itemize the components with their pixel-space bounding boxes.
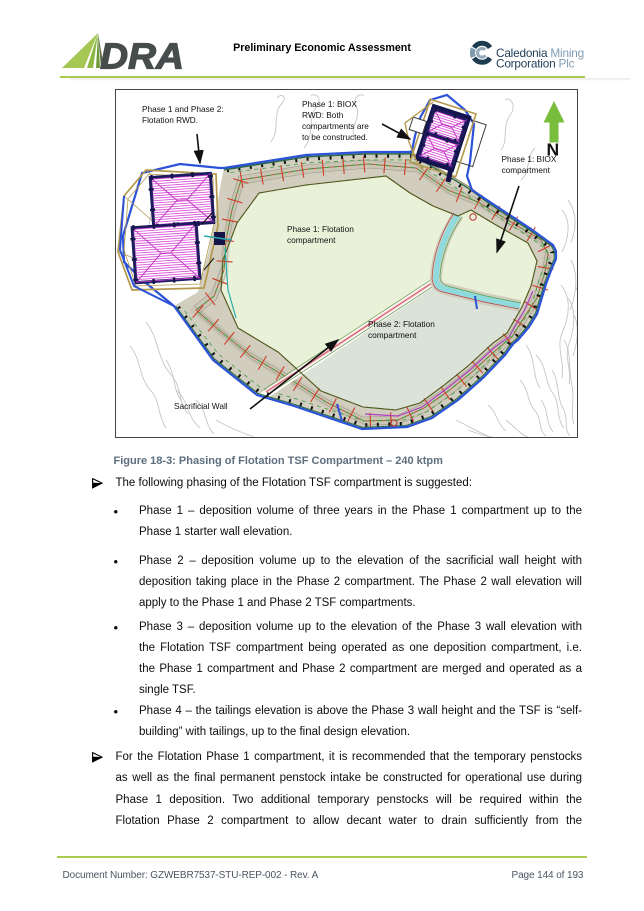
svg-text:compartments are: compartments are [302,121,369,131]
svg-text:Phase 2: Flotation: Phase 2: Flotation [368,319,435,329]
svg-text:Phase 1: Flotation: Phase 1: Flotation [287,224,354,234]
svg-text:RWD: Both: RWD: Both [302,110,344,120]
svg-text:compartment: compartment [368,330,417,340]
svg-text:N: N [547,140,560,160]
svg-text:to be constructed.: to be constructed. [302,132,368,142]
svg-text:Phase 1 and Phase 2:: Phase 1 and Phase 2: [142,104,224,114]
svg-text:Corporation Plc: Corporation Plc [496,57,575,71]
svg-text:compartment: compartment [287,235,336,245]
svg-text:Sacrificial Wall: Sacrificial Wall [174,401,228,411]
svg-text:compartment: compartment [502,165,551,175]
svg-text:Phase 1: BIOX: Phase 1: BIOX [302,99,357,109]
svg-text:Flotation RWD.: Flotation RWD. [142,115,198,125]
